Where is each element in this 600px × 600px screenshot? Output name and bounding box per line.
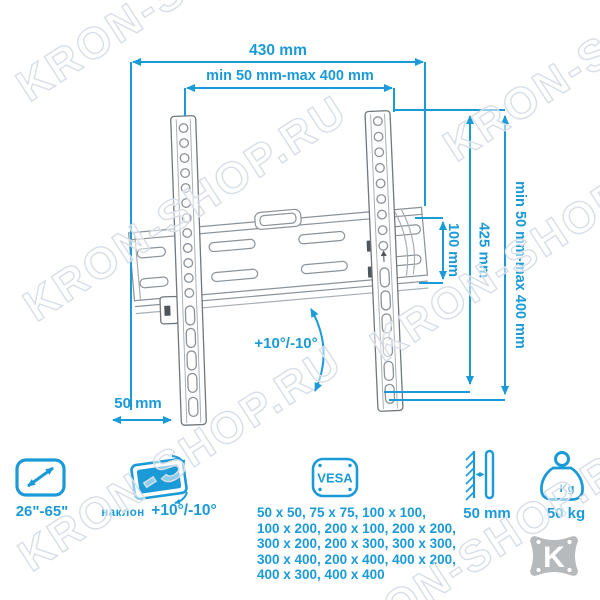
- kg-badge-text: Kg: [560, 483, 575, 495]
- diagonal-arrow: [28, 468, 53, 486]
- max-weight-value: 50 kg: [540, 505, 592, 522]
- vesa-icon: VESA: [310, 456, 360, 500]
- wall-distance-value: 50 mm: [457, 505, 517, 522]
- dim-rail-height-label: 425 mm: [475, 215, 492, 285]
- vesa-badge-text: VESA: [317, 471, 353, 486]
- vesa-line: 300 x 400, 200 x 400, 400 x 200,: [257, 552, 557, 568]
- wall-distance-icon: [462, 448, 504, 502]
- product-diagram-page: 430 mm min 50 mm-max 400 mm 100 mm 425 m…: [0, 0, 600, 600]
- dim-mount-width-label: min 50 mm-max 400 mm: [200, 69, 380, 85]
- dim-bracket-height-label: 100 mm: [444, 215, 460, 285]
- max-weight-icon: Kg: [536, 448, 588, 506]
- vesa-line: 100 x 200, 200 x 100, 200 x 200,: [257, 521, 557, 537]
- dim-total-width-label: 430 mm: [238, 42, 318, 59]
- wall-mount-drawing: [0, 0, 600, 445]
- screen-size-icon: [14, 457, 68, 499]
- tilt-range-label: +10°/-10°: [246, 336, 326, 353]
- vesa-line: 300 x 200, 200 x 300, 300 x 300,: [257, 536, 557, 552]
- dim-wall-offset-label: 50 mm: [103, 396, 173, 413]
- tilt-value: +10°/-10°: [146, 502, 222, 520]
- screen-size-value: 26"-65": [10, 503, 74, 520]
- tilt-icon: [126, 452, 192, 508]
- plate-handle: [254, 209, 301, 230]
- vesa-line: 400 x 300, 400 x 400: [257, 567, 557, 583]
- dim-mount-height-label: min 50 mm-max 400 mm: [511, 175, 527, 355]
- tilt-word-label: наклон: [98, 507, 148, 519]
